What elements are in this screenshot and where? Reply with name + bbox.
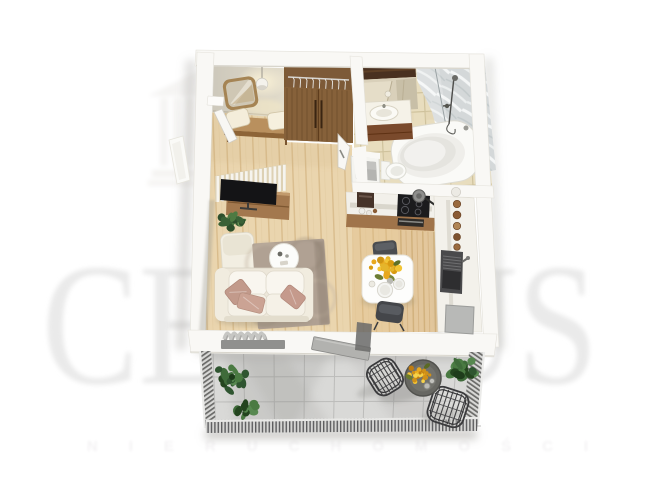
- svg-text:NIERUCHOMOŚCI: NIERUCHOMOŚCI: [87, 437, 619, 455]
